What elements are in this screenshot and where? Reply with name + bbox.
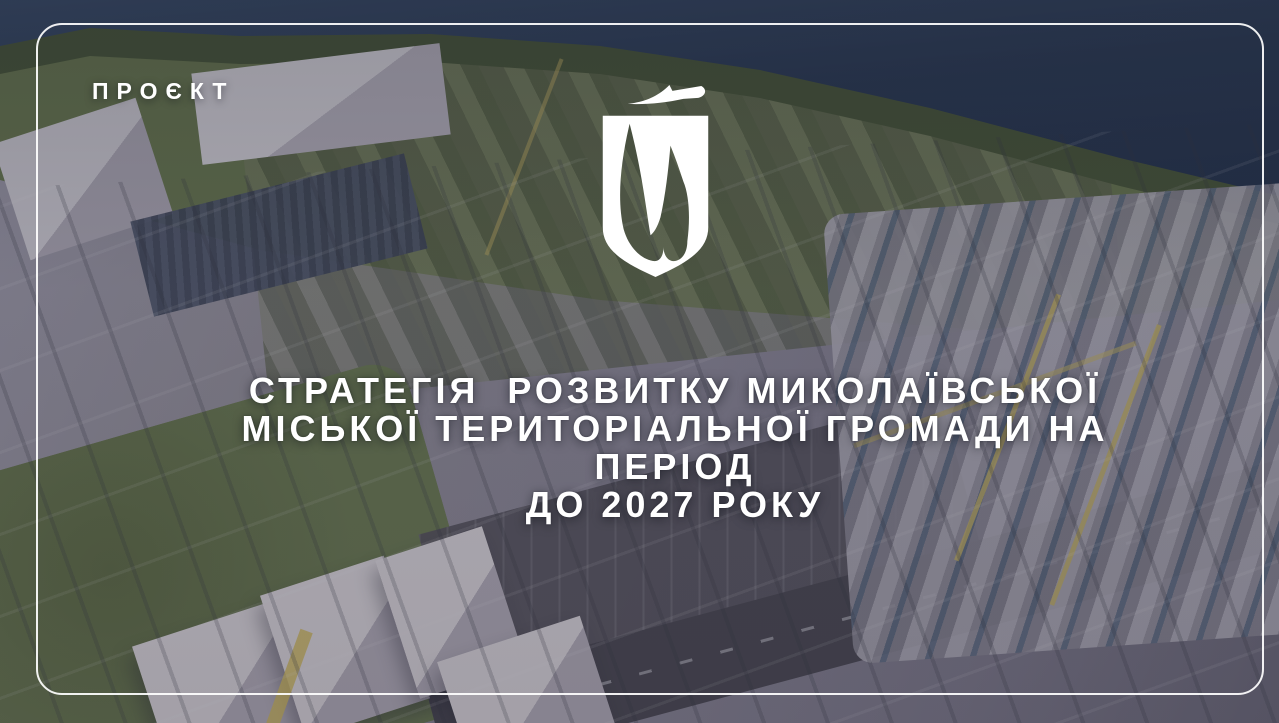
mykolaiv-city-emblem-icon (599, 78, 712, 279)
emblem-pennant (628, 85, 705, 104)
project-status-label: ПРОЄКТ (92, 78, 234, 105)
presentation-slide: ПРОЄКТ СТРАТЕГІЯ РОЗВИТКУ МИКОЛАЇВСЬКОЇ … (0, 0, 1279, 723)
emblem-shield-with-sails (603, 116, 708, 277)
title-line-2: МІСЬКОЇ ТЕРИТОРІАЛЬНОЇ ГРОМАДИ НА (115, 410, 1235, 448)
title-line-4: ДО 2027 РОКУ (115, 486, 1235, 524)
title-line-1: СТРАТЕГІЯ РОЗВИТКУ МИКОЛАЇВСЬКОЇ (115, 372, 1235, 410)
title-line-3: ПЕРІОД (115, 448, 1235, 486)
slide-title: СТРАТЕГІЯ РОЗВИТКУ МИКОЛАЇВСЬКОЇ МІСЬКОЇ… (115, 372, 1235, 524)
